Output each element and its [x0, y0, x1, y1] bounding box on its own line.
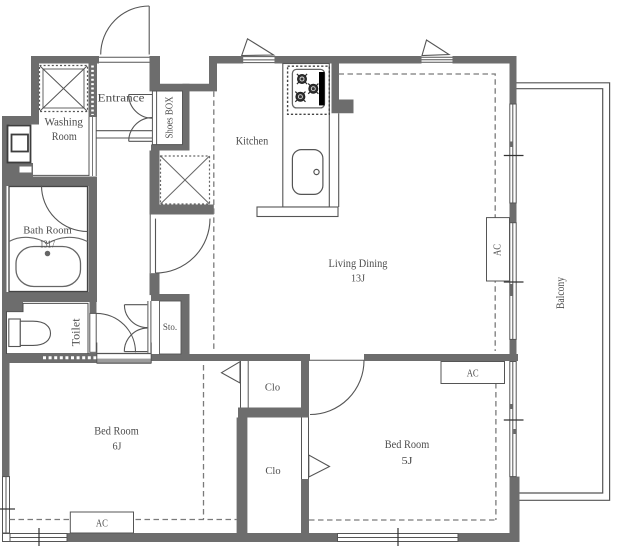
svg-text:Shoes BOX: Shoes BOX: [165, 96, 176, 138]
svg-text:Bed Room: Bed Room: [94, 426, 139, 438]
svg-text:Bed Room: Bed Room: [385, 439, 430, 451]
svg-text:Room: Room: [52, 131, 77, 143]
svg-text:Kitchen: Kitchen: [236, 135, 269, 147]
svg-text:13J: 13J: [351, 273, 366, 285]
svg-text:Washing: Washing: [44, 117, 83, 129]
svg-text:AC: AC: [467, 369, 479, 380]
svg-text:AC: AC: [96, 519, 108, 530]
svg-text:Entrance: Entrance: [98, 93, 145, 105]
svg-text:6J: 6J: [113, 441, 123, 453]
svg-text:Clo: Clo: [265, 383, 280, 394]
svg-text:Bath Room: Bath Room: [23, 224, 72, 236]
svg-text:Sto.: Sto.: [163, 322, 177, 332]
svg-text:1317: 1317: [40, 239, 55, 250]
svg-text:5J: 5J: [402, 455, 414, 467]
svg-text:Toilet: Toilet: [71, 318, 83, 347]
svg-text:Living Dining: Living Dining: [329, 256, 388, 270]
svg-text:Clo: Clo: [265, 466, 280, 477]
svg-text:Balcony: Balcony: [555, 277, 567, 309]
svg-text:AC: AC: [493, 244, 504, 256]
